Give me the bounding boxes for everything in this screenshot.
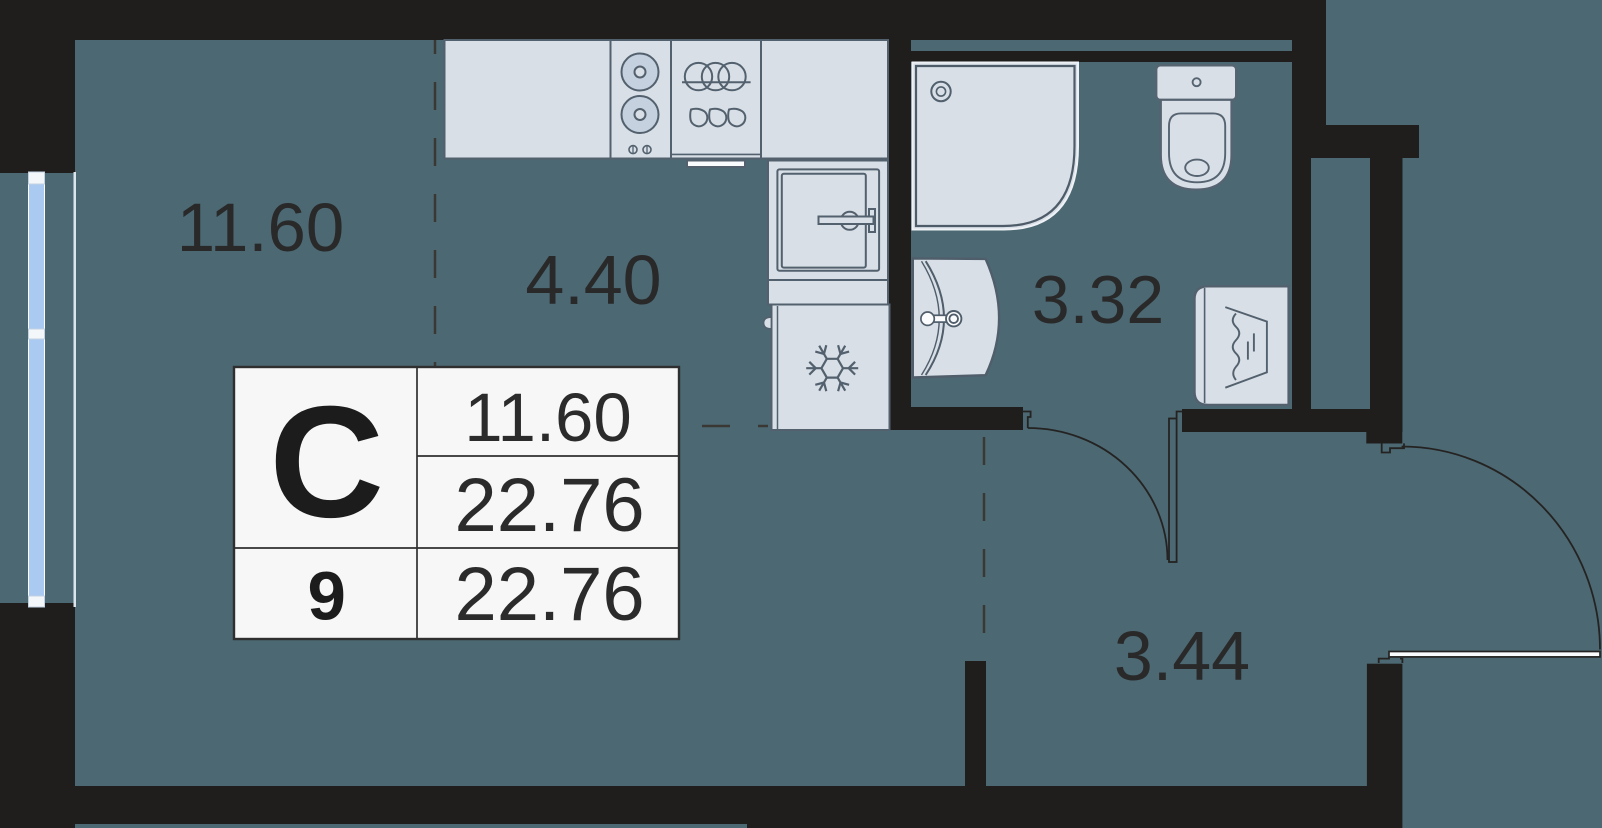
- svg-text:4.40: 4.40: [525, 241, 661, 319]
- svg-text:22.76: 22.76: [455, 552, 645, 637]
- svg-text:9: 9: [308, 558, 346, 635]
- svg-text:3.32: 3.32: [1032, 262, 1164, 338]
- svg-text:3.44: 3.44: [1114, 617, 1250, 695]
- svg-text:22.76: 22.76: [455, 463, 645, 548]
- svg-text:11.60: 11.60: [464, 379, 632, 456]
- svg-text:11.60: 11.60: [177, 189, 345, 266]
- svg-text:С: С: [269, 373, 384, 551]
